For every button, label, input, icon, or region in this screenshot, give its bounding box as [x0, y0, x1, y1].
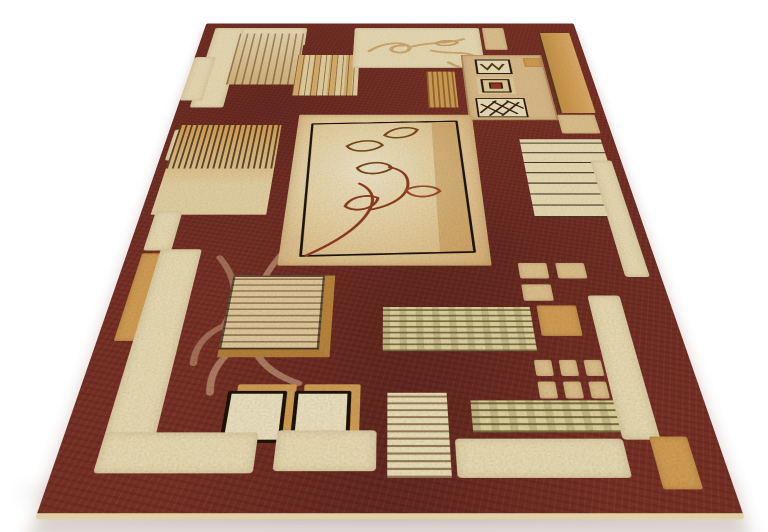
ornate-woodgrain-square — [217, 276, 335, 358]
left-lower-tile — [143, 211, 183, 251]
bottom-right-gold-corner — [649, 437, 703, 490]
small-tile-4 — [537, 382, 558, 399]
bottom-striped-square — [387, 393, 452, 478]
stripe-block-top-left — [292, 55, 360, 95]
right-tile-1 — [518, 263, 550, 279]
small-tile-2 — [559, 360, 580, 376]
top-tile — [482, 28, 508, 50]
right-gold-square — [536, 305, 582, 335]
motif-crosshatch-tile — [475, 98, 530, 117]
woodgrain-square — [226, 34, 305, 85]
rug-plane — [35, 23, 745, 519]
bottom-bar-mid — [273, 430, 377, 471]
small-tile-5 — [563, 382, 584, 399]
small-tile-1 — [534, 360, 554, 376]
lower-stripe-band — [470, 400, 623, 432]
motif-red-center-tile — [475, 77, 517, 94]
bottom-bar-right — [455, 439, 632, 478]
gold-stripe-tile — [426, 72, 458, 108]
product-photo-scene — [0, 0, 768, 532]
mid-stripe-band — [383, 307, 538, 351]
right-tile-2 — [555, 263, 588, 279]
right-top-tile — [522, 58, 542, 67]
small-tile-3 — [583, 360, 604, 376]
bottom-bar-left — [93, 432, 258, 473]
motif-zigzag-tile — [474, 59, 513, 74]
right-gold-bar-foot — [557, 115, 600, 134]
right-vertical-bar — [590, 160, 650, 277]
small-tile-6 — [588, 382, 610, 399]
right-tile-3 — [521, 284, 554, 300]
left-fringe-block — [151, 125, 282, 215]
